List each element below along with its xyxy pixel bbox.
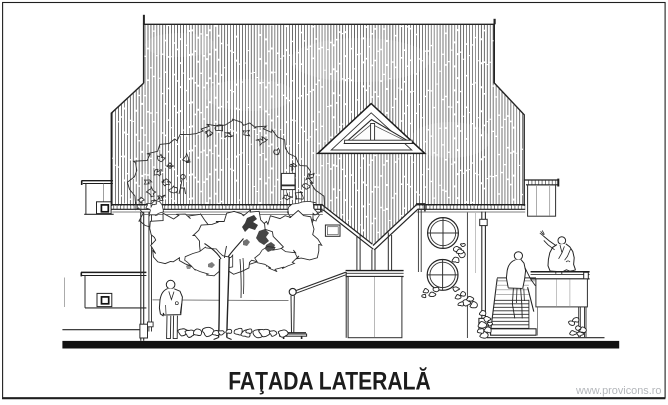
svg-text:FAŢADA LATERALĂ: FAŢADA LATERALĂ <box>228 367 431 396</box>
svg-text:www.provicons.ro: www.provicons.ro <box>575 385 661 397</box>
